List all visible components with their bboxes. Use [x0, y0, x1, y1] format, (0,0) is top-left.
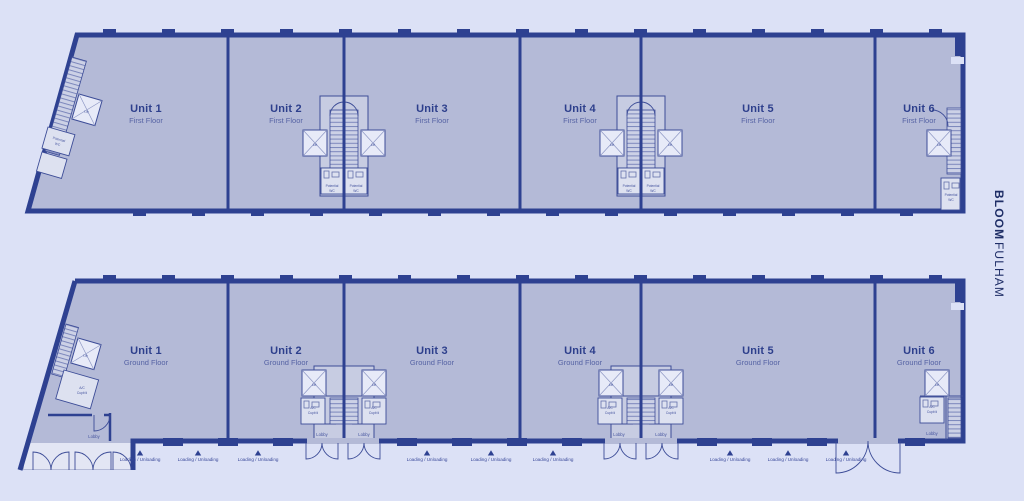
wall-piers-top — [103, 29, 942, 34]
stair-flight — [345, 398, 358, 424]
corner-pier — [955, 282, 963, 302]
unit-subtitle: Ground Floor — [736, 358, 781, 367]
lift-label: Lift — [935, 383, 939, 387]
lobby-label: Lobby — [316, 432, 328, 437]
loading-marker-icon — [255, 450, 261, 455]
door-arc-icon — [306, 443, 338, 459]
cupboard-label: Cupb'd — [605, 411, 616, 415]
unit-subtitle: Ground Floor — [410, 358, 455, 367]
cupboard-label: A/C — [607, 406, 613, 410]
unit-subtitle: Ground Floor — [897, 358, 942, 367]
corner-pier — [955, 36, 963, 56]
loading-label: Loading / Unloading — [178, 457, 219, 462]
cupboard-label: A/C — [79, 386, 85, 390]
unit-subtitle: First Floor — [741, 116, 775, 125]
loading-marker-icon — [550, 450, 556, 455]
lobby-label: Lobby — [88, 434, 100, 439]
door-arc-icon — [604, 443, 636, 459]
lobby-label: Lobby — [926, 431, 938, 436]
potential-wc-label: WC — [948, 198, 954, 202]
loading-label: Loading / Unloading — [120, 457, 161, 462]
unit-subtitle: First Floor — [415, 116, 449, 125]
lobby-label: Lobby — [613, 432, 625, 437]
potential-wc-label: Potential — [350, 184, 363, 188]
unit-title: Unit 5 — [742, 103, 774, 115]
cupboard-label: A/C — [310, 406, 316, 410]
lift-label: Lift — [609, 383, 613, 387]
lift-label: Lift — [610, 143, 614, 147]
loading-label: Loading / Unloading — [768, 457, 809, 462]
unit-subtitle: Ground Floor — [264, 358, 309, 367]
loading-marker-icon — [488, 450, 494, 455]
unit-title: Unit 6 — [903, 103, 935, 115]
loading-marker-icon — [727, 450, 733, 455]
stair-flight — [627, 398, 640, 424]
first-floor-outline — [28, 35, 963, 211]
unit-title: Unit 4 — [564, 345, 596, 357]
unit-title: Unit 1 — [130, 103, 162, 115]
stair-flight — [345, 110, 358, 168]
unit-subtitle: First Floor — [563, 116, 597, 125]
unit-subtitle: Ground Floor — [124, 358, 169, 367]
stair-flight — [627, 110, 640, 168]
loading-label: Loading / Unloading — [533, 457, 574, 462]
wall-piers-top — [103, 275, 942, 280]
cupboard-label: A/C — [668, 406, 674, 410]
potential-wc-label: WC — [626, 189, 632, 193]
unit-title: Unit 6 — [903, 345, 935, 357]
corner-notch — [951, 303, 964, 310]
loading-label: Loading / Unloading — [407, 457, 448, 462]
potential-wc-label: Potential — [647, 184, 660, 188]
unit-subtitle: First Floor — [269, 116, 303, 125]
cupboard-label: Cupb'd — [666, 411, 677, 415]
brand: BLOOM FULHAM — [992, 190, 1006, 298]
unit-title: Unit 2 — [270, 103, 302, 115]
brand-fulham: FULHAM — [992, 242, 1006, 298]
stair-flight — [642, 398, 655, 424]
unit-title: Unit 3 — [416, 345, 448, 357]
unit-title: Unit 1 — [130, 345, 162, 357]
lift-label: Lift — [668, 143, 672, 147]
lift-label: Lift — [937, 143, 941, 147]
potential-wc-label: Potential — [945, 193, 958, 197]
first-floor-plan: Potential WC Lift — [28, 29, 964, 216]
loading-label: Loading / Unloading — [826, 457, 867, 462]
loading-marker-icon — [195, 450, 201, 455]
lift-label: Lift — [371, 143, 375, 147]
lift-label: Lift — [313, 143, 317, 147]
cupboard-label: A/C — [371, 406, 377, 410]
cupboard-label: Cupb'd — [927, 410, 938, 414]
unit-title: Unit 3 — [416, 103, 448, 115]
brand-bloom: BLOOM — [992, 190, 1006, 240]
floorplan-page: Potential WC Lift — [0, 0, 1024, 501]
stair-flight — [330, 110, 343, 168]
door-arc-icon — [348, 443, 380, 459]
unit-subtitle: First Floor — [129, 116, 163, 125]
door-opening — [605, 438, 677, 444]
lobby-label: Lobby — [358, 432, 370, 437]
potential-wc-label: WC — [353, 189, 359, 193]
loading-marker-icon — [785, 450, 791, 455]
loading-label: Loading / Unloading — [710, 457, 751, 462]
door-arc-icon — [646, 443, 678, 459]
stair-flight — [330, 398, 343, 424]
cupboard-label: Cupb'd — [369, 411, 380, 415]
lift-label: Lift — [372, 383, 376, 387]
ground-floor-plan: Lift — [20, 275, 964, 473]
loading-label: Loading / Unloading — [238, 457, 279, 462]
entrance-recess — [24, 443, 131, 469]
loading-marker-icon — [137, 450, 143, 455]
floorplan-canvas: Potential WC Lift — [0, 0, 1024, 501]
lift-label: Lift — [312, 383, 316, 387]
door-opening — [307, 438, 379, 444]
potential-wc-label: WC — [329, 189, 335, 193]
loading-label: Loading / Unloading — [471, 457, 512, 462]
unit-subtitle: Ground Floor — [558, 358, 603, 367]
stair-flight — [948, 398, 961, 438]
lift-label: Lift — [669, 383, 673, 387]
potential-wc-label: Potential — [623, 184, 636, 188]
lobby-label: Lobby — [655, 432, 667, 437]
cupboard-label: Cupb'd — [308, 411, 319, 415]
unit-title: Unit 5 — [742, 345, 774, 357]
corner-notch — [951, 57, 964, 64]
potential-wc-label: Potential — [326, 184, 339, 188]
potential-wc-label: WC — [650, 189, 656, 193]
stair-flight — [642, 110, 655, 168]
loading-marker-icon — [843, 450, 849, 455]
unit-title: Unit 2 — [270, 345, 302, 357]
unit-subtitle: First Floor — [902, 116, 936, 125]
loading-marker-icon — [424, 450, 430, 455]
cupboard-label: A/C — [929, 405, 935, 409]
unit-title: Unit 4 — [564, 103, 596, 115]
cupboard-label: Cupb'd — [77, 391, 88, 395]
